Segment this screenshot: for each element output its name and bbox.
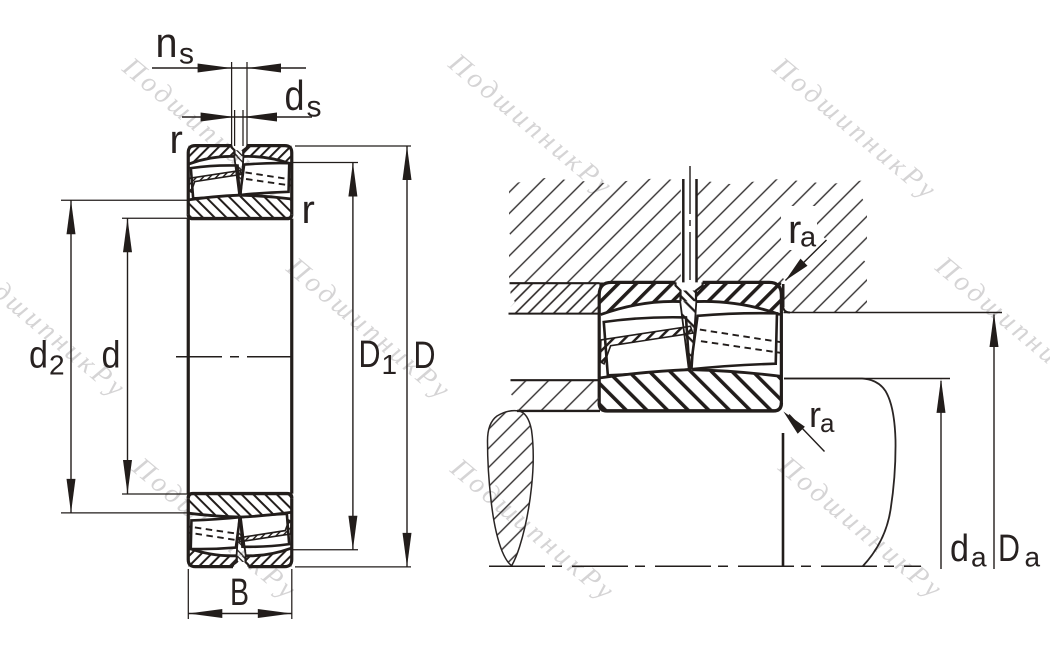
svg-text:d: d [102, 335, 121, 377]
svg-text:d: d [29, 335, 48, 377]
svg-text:ПодшипникРу: ПодшипникРу [772, 450, 948, 605]
svg-text:a: a [800, 222, 817, 254]
svg-text:r: r [302, 188, 315, 232]
svg-text:s: s [307, 91, 322, 124]
svg-text:s: s [179, 38, 194, 71]
svg-text:a: a [820, 408, 835, 438]
svg-text:1: 1 [382, 349, 398, 380]
svg-text:D: D [359, 334, 381, 376]
svg-text:ПодшипникРу: ПодшипникРу [929, 250, 1050, 405]
svg-text:a: a [1025, 542, 1041, 573]
svg-text:ПодшипникРу: ПодшипникРу [0, 249, 131, 404]
svg-text:2: 2 [49, 350, 65, 381]
svg-text:r: r [170, 118, 183, 162]
svg-text:D: D [998, 528, 1020, 570]
svg-text:D: D [414, 335, 436, 377]
svg-text:B: B [230, 572, 249, 614]
svg-text:ПодшипникРу: ПодшипникРу [442, 47, 618, 202]
svg-text:d: d [950, 528, 969, 570]
svg-text:a: a [971, 542, 987, 573]
svg-text:ПодшипникРу: ПодшипникРу [280, 251, 456, 406]
svg-text:d: d [285, 72, 305, 119]
svg-text:n: n [156, 19, 178, 66]
